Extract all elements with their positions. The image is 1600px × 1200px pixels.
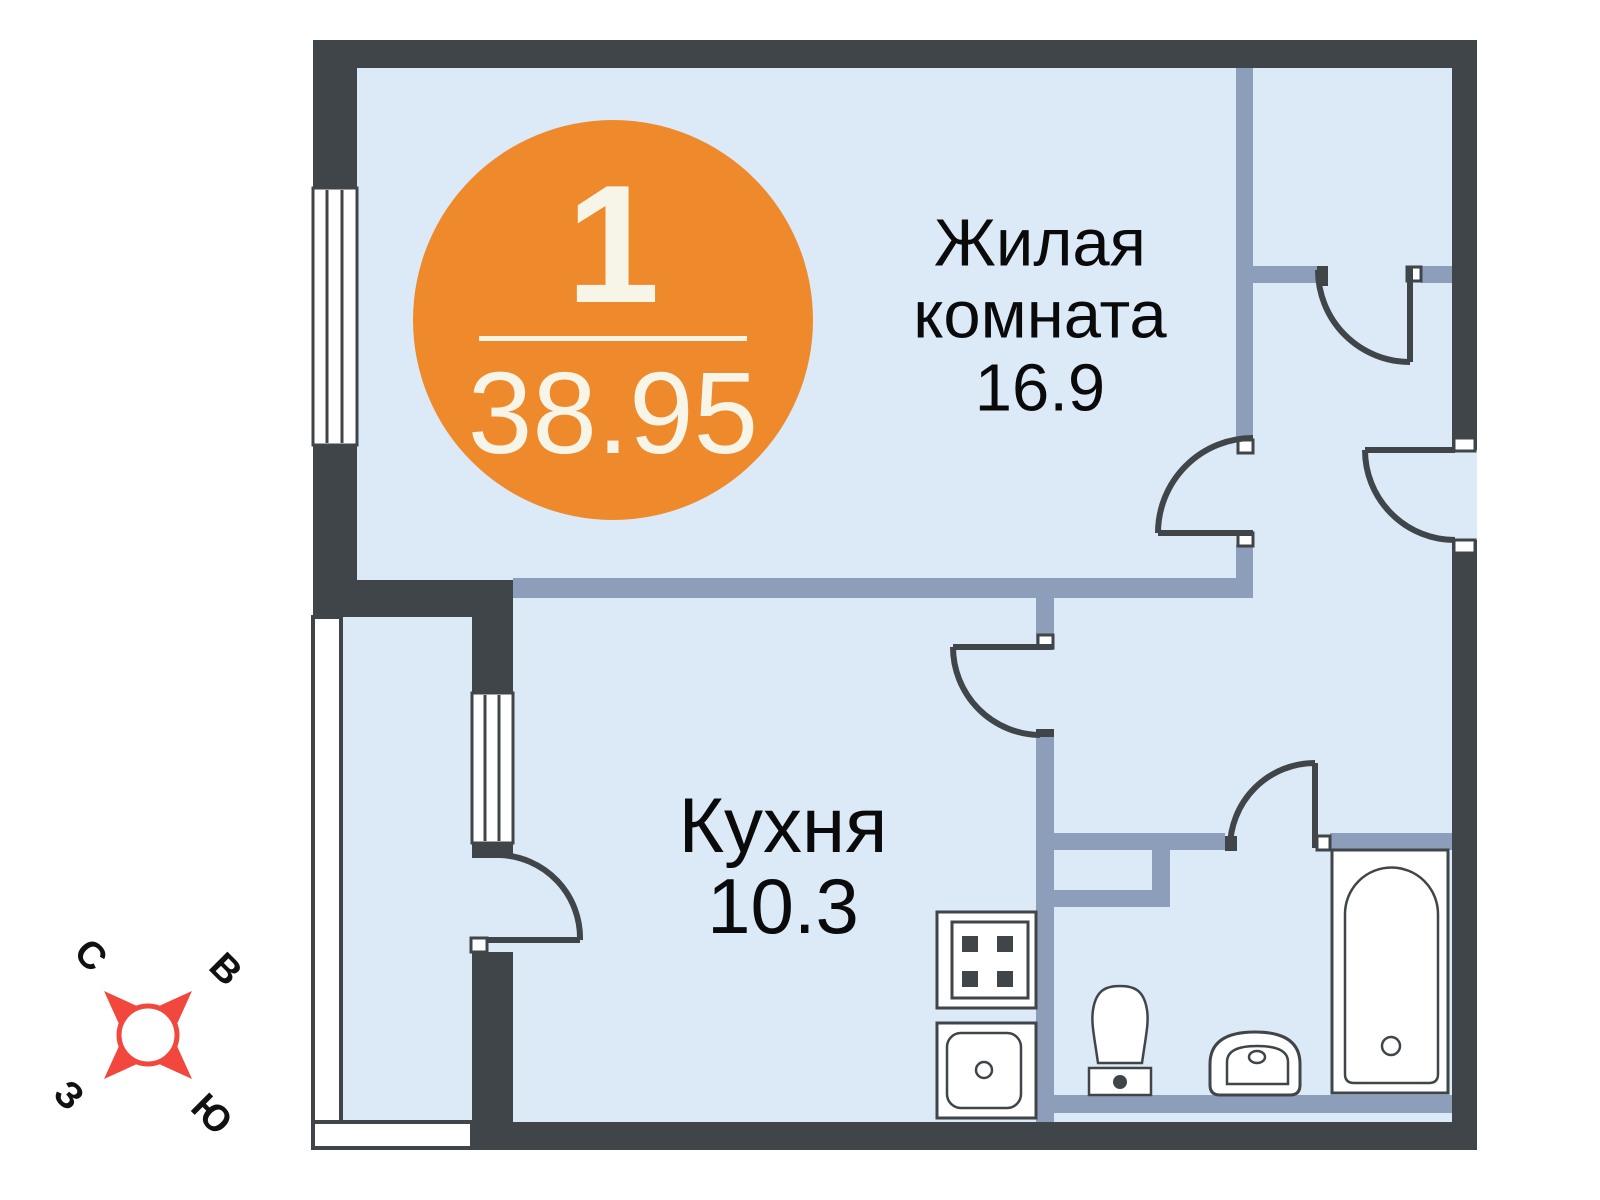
wall-right-lower (1452, 540, 1477, 1150)
wall-left-top (313, 40, 357, 188)
wall-living-balcony (313, 580, 513, 617)
balcony-border-bottom (313, 1122, 473, 1148)
wall-bath-top-left (1054, 833, 1225, 850)
wall-living-kitchen (513, 578, 1253, 598)
compass-hub (119, 1006, 177, 1064)
balcony-border-left (313, 617, 341, 1148)
floor-plan-drawing (0, 0, 1600, 1200)
wall-right-upper (1452, 40, 1477, 450)
bathtub (1332, 850, 1448, 1093)
entry-door-jamb-top (1454, 438, 1475, 451)
living-room-area: 16.9 (913, 352, 1166, 424)
compass-rose (104, 991, 192, 1079)
stove (937, 912, 1036, 1008)
toilet (1089, 986, 1151, 1095)
wall-kitchen-left-lower (472, 952, 513, 1122)
balcony-floor (341, 617, 472, 1122)
wall-kitchen-left-upper (472, 617, 513, 693)
apartment-badge: 1 38.95 (413, 120, 813, 520)
badge-total-area: 38.95 (468, 355, 758, 471)
wall-bath-bottom (1054, 1095, 1452, 1113)
entry-doorway-gap (1452, 450, 1477, 540)
wall-closet-left (1253, 266, 1317, 283)
wall-top (313, 40, 1477, 68)
badge-divider (479, 336, 747, 341)
kitchen-label: Кухня 10.3 (679, 785, 888, 947)
shaft-wall-bottom (1054, 890, 1170, 907)
washbasin (1210, 1032, 1300, 1095)
kitchen-sink (937, 1023, 1036, 1118)
kitchen-window (472, 693, 513, 843)
wall-bottom (470, 1122, 1477, 1150)
living-window (313, 188, 357, 445)
kitchen-area: 10.3 (679, 866, 888, 947)
wall-living-hall-upper (1236, 68, 1253, 440)
bath-door-jamb-right (1317, 836, 1330, 850)
badge-room-count: 1 (566, 169, 659, 320)
balcony-door-jamb-bottom (471, 938, 487, 952)
entry-door-jamb-bottom (1454, 540, 1475, 553)
kitchen-name: Кухня (679, 785, 888, 866)
living-room-name-line1: Жилая (913, 207, 1166, 279)
wall-closet-right (1421, 266, 1452, 283)
wall-kitchen-hall-lower (1036, 737, 1054, 1122)
living-door-jamb-top (1238, 440, 1253, 453)
living-room-label: Жилая комната 16.9 (913, 207, 1166, 424)
floorplan-page: 1 38.95 Жилая комната 16.9 Кухня 10.3 С … (0, 0, 1600, 1200)
wall-bath-top-right (1330, 833, 1452, 850)
living-room-name-line2: комната (913, 280, 1166, 352)
